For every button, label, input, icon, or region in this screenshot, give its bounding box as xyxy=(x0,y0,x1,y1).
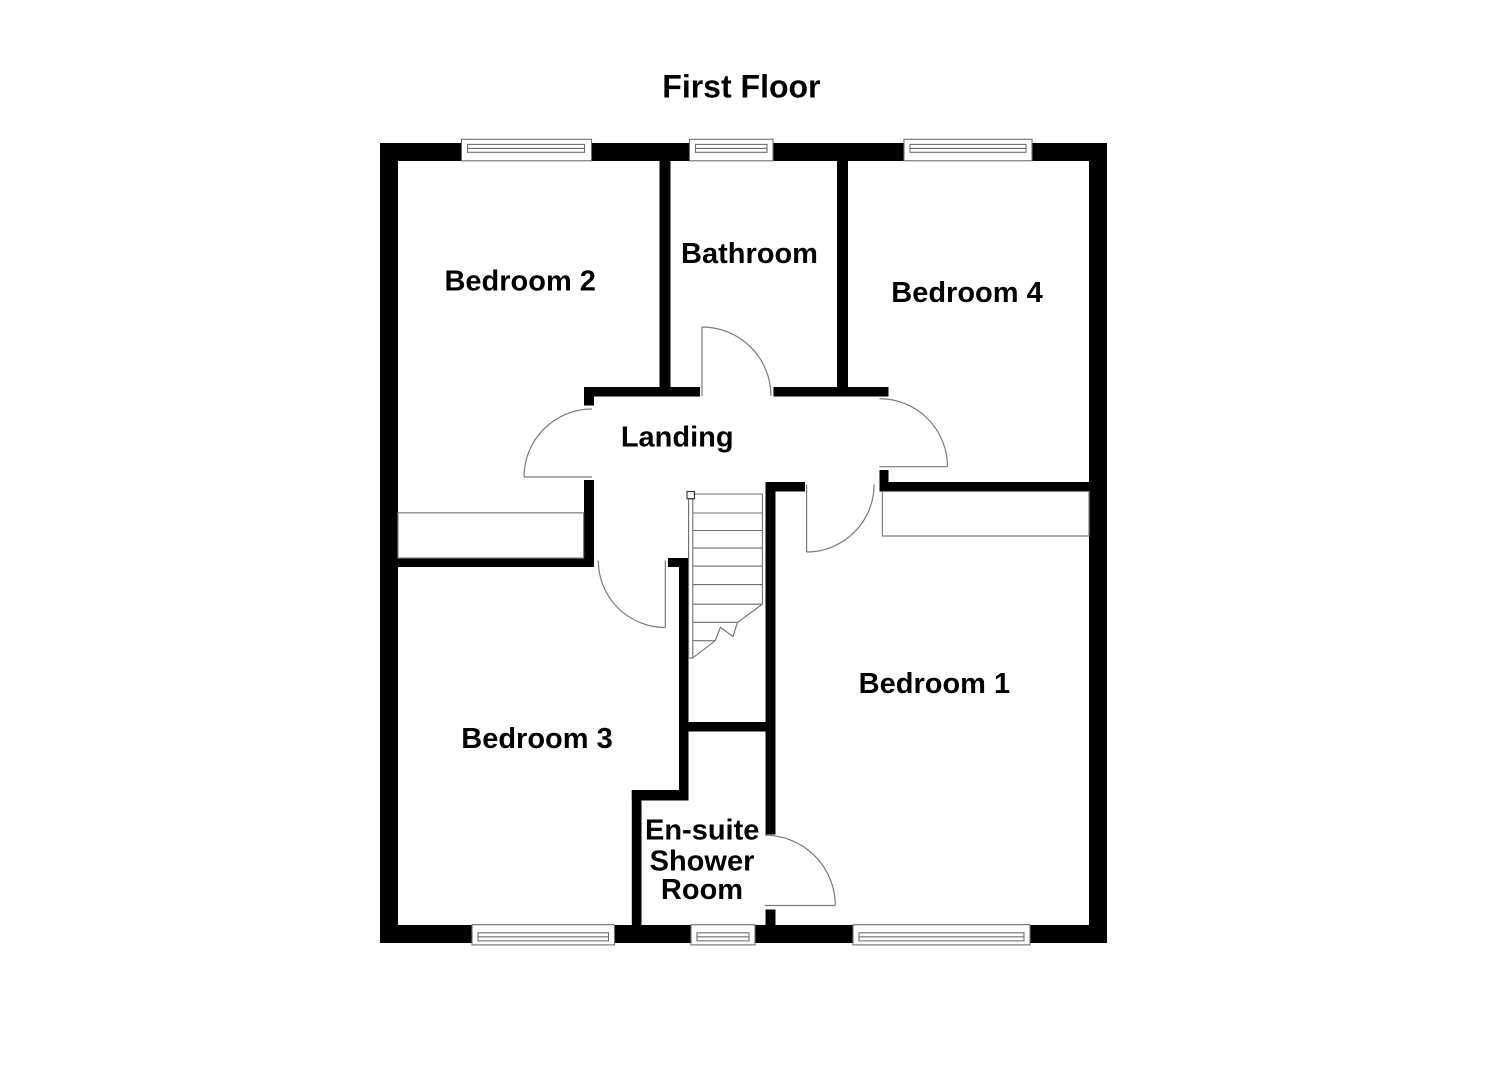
svg-text:Bedroom 2: Bedroom 2 xyxy=(444,266,595,298)
svg-text:Room: Room xyxy=(661,874,743,906)
svg-text:En-suite: En-suite xyxy=(645,815,759,847)
svg-text:Landing: Landing xyxy=(621,421,734,453)
svg-text:Shower: Shower xyxy=(650,846,755,878)
svg-text:Bedroom 1: Bedroom 1 xyxy=(859,668,1010,700)
svg-text:Bathroom: Bathroom xyxy=(681,238,818,270)
svg-text:Bedroom 4: Bedroom 4 xyxy=(891,277,1042,309)
svg-text:First Floor: First Floor xyxy=(662,69,820,105)
svg-text:Bedroom 3: Bedroom 3 xyxy=(461,723,612,755)
